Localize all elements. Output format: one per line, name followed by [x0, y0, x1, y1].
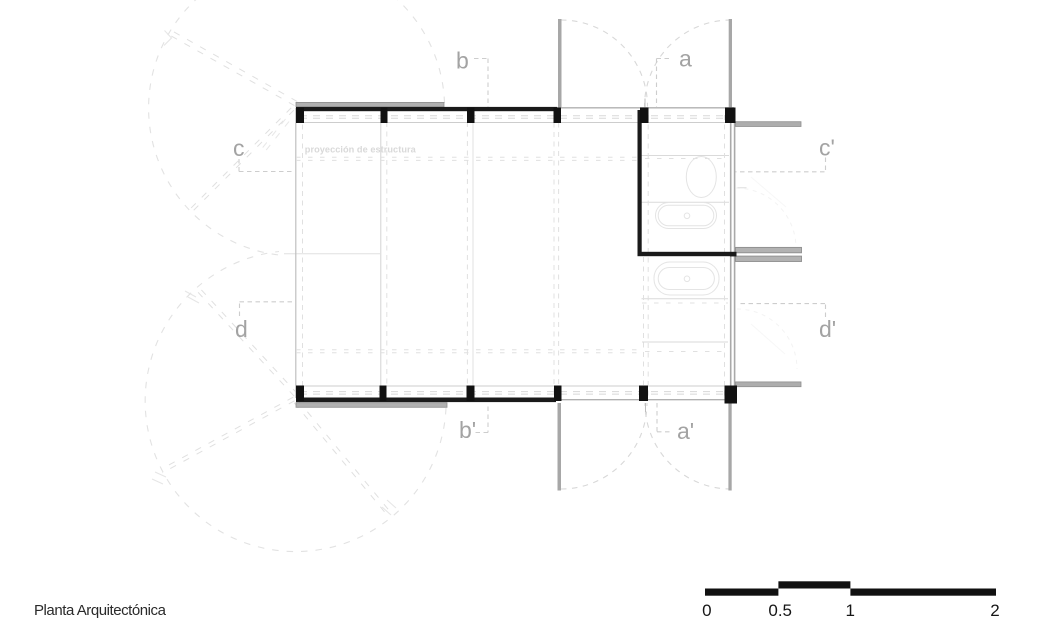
svg-text:c': c'	[819, 135, 835, 161]
svg-text:d': d'	[819, 316, 836, 342]
svg-text:0: 0	[702, 601, 711, 620]
svg-text:c: c	[233, 135, 245, 161]
svg-text:b': b'	[459, 417, 476, 443]
svg-text:2: 2	[990, 601, 999, 620]
svg-text:1: 1	[845, 601, 854, 620]
svg-text:0.5: 0.5	[768, 601, 792, 620]
svg-text:a': a'	[677, 418, 694, 444]
svg-text:proyección de estructura: proyección de estructura	[305, 145, 417, 155]
svg-text:d: d	[235, 316, 248, 342]
svg-text:Planta Arquitectónica: Planta Arquitectónica	[34, 602, 167, 619]
svg-text:a: a	[679, 46, 692, 72]
svg-text:b: b	[456, 48, 469, 74]
